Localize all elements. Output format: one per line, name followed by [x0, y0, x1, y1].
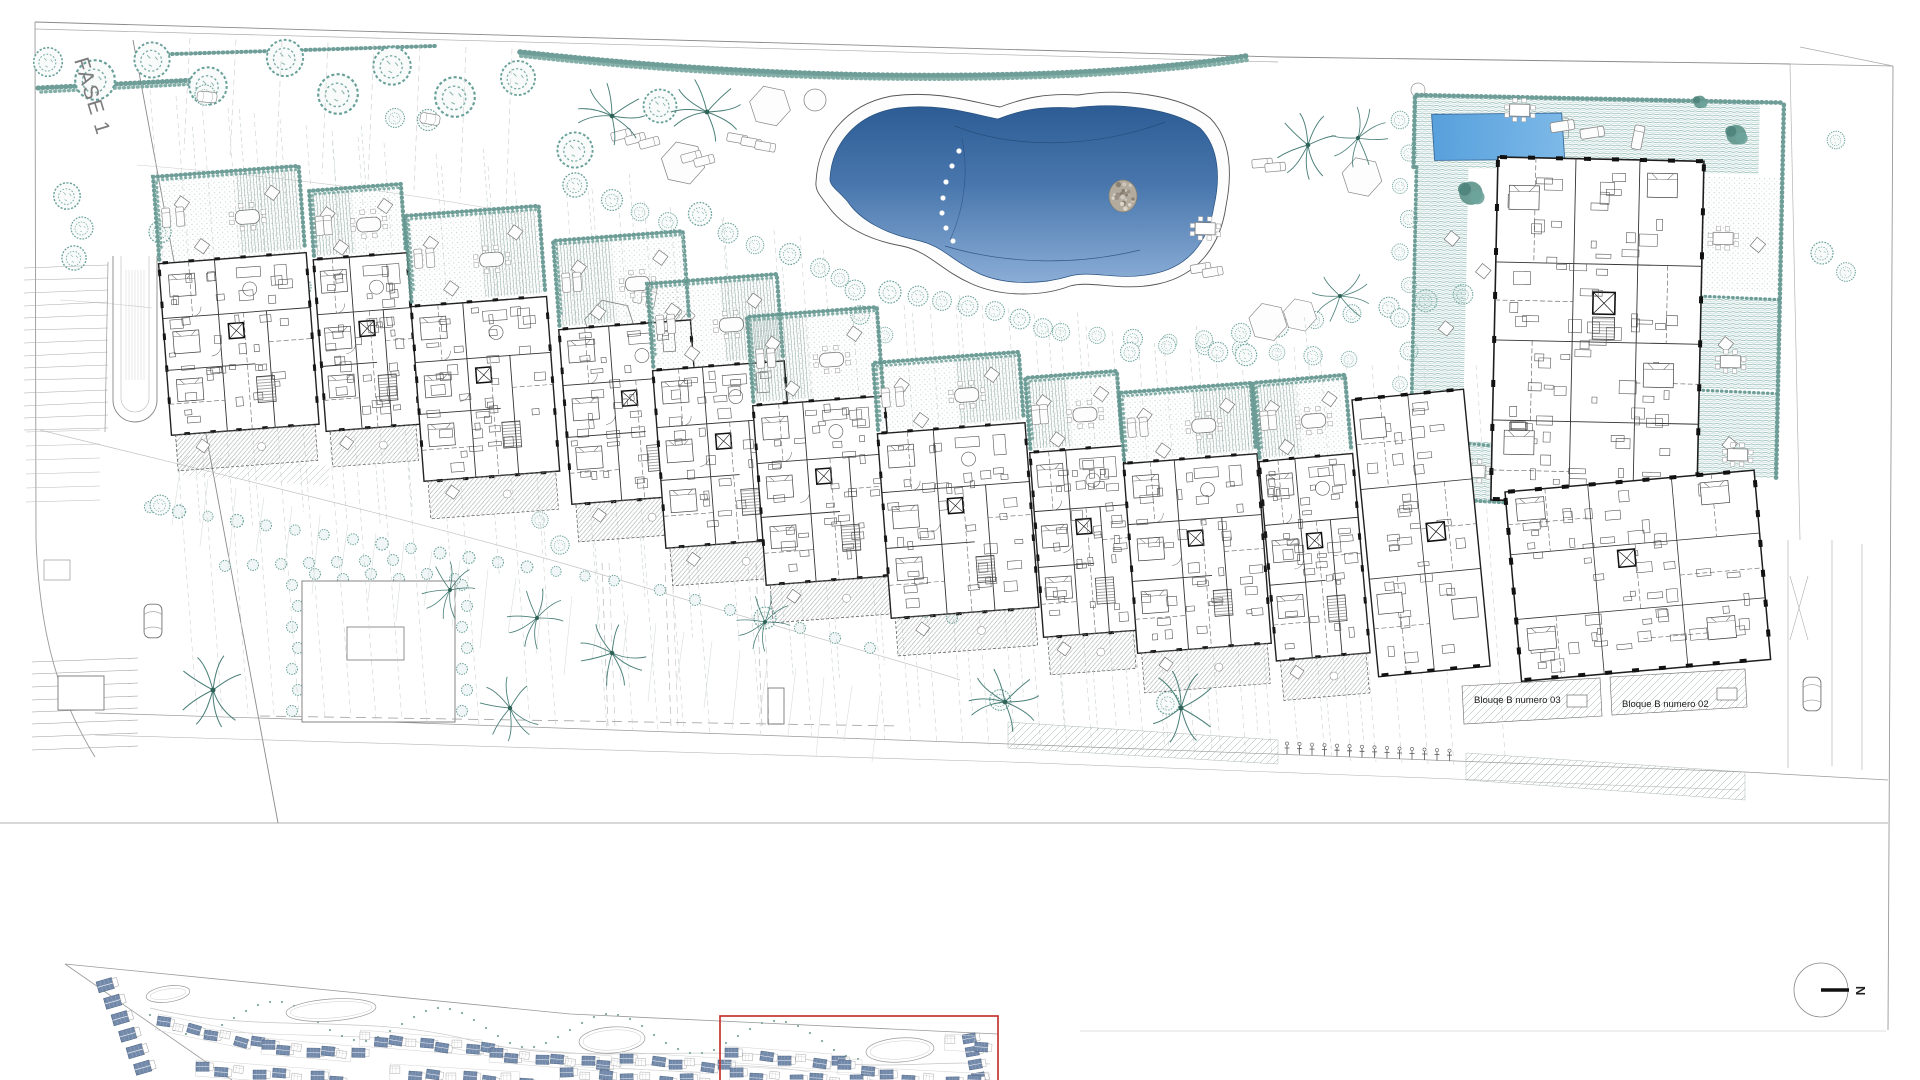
svg-text:Bloque B numero 02: Bloque B numero 02 — [1622, 699, 1709, 710]
svg-text:N: N — [1853, 986, 1868, 995]
svg-text:Blouqe B numero 03: Blouqe B numero 03 — [1474, 695, 1561, 706]
